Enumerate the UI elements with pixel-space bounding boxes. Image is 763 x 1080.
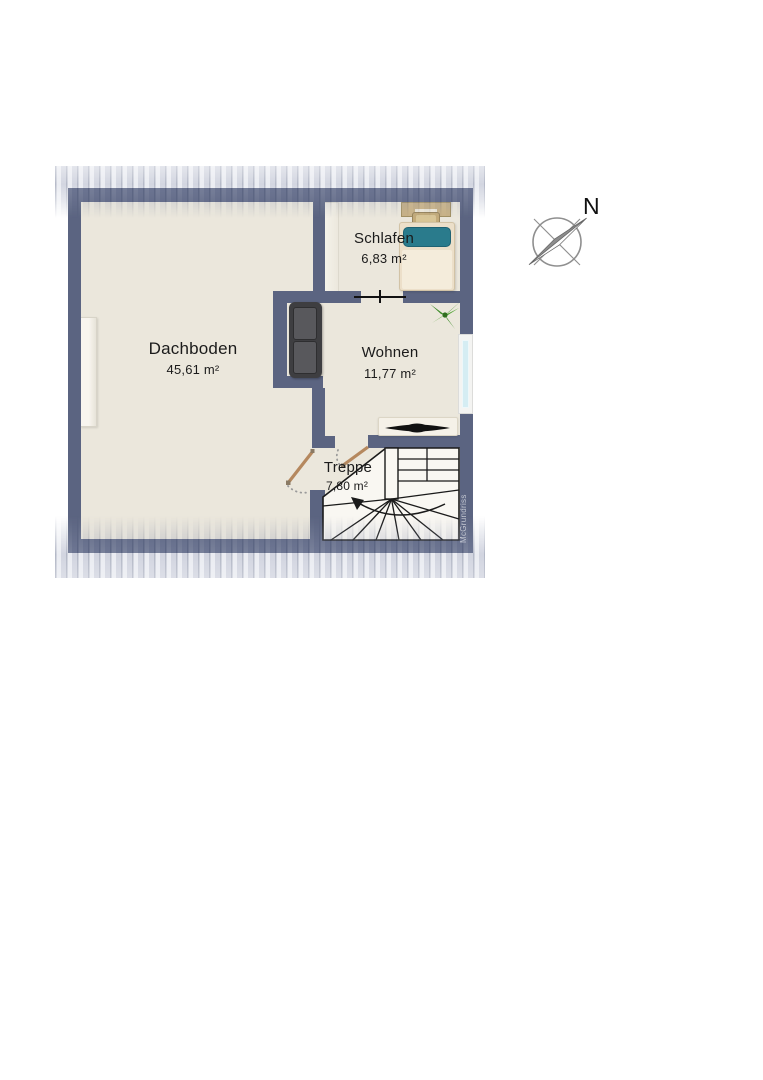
compass-rose: N [515,180,625,285]
room-label-dachboden: Dachboden [149,340,238,359]
sofa-cushion [293,341,317,374]
wardrobe-dachboden [80,317,97,427]
floor-plan-page: Dachboden 45,61 m² Schlafen 6,83 m² Wohn… [0,0,763,1080]
door-leaf-dachboden [288,451,313,483]
roof-slope-shading-bottom [55,516,485,578]
sofa-cushion [293,307,317,340]
room-area-treppe: 7,80 m² [326,480,368,493]
room-area-dachboden: 45,61 m² [167,363,220,377]
wall-outer-left [68,188,81,553]
door-swing-arc-dachboden [288,486,310,493]
room-label-schlafen: Schlafen [354,231,414,248]
window-right [458,334,473,414]
compass-needle [527,215,589,267]
bed-sheet [402,250,452,289]
watermark: McGrundriss [459,487,471,543]
window-glass [462,340,469,408]
sofa [289,302,322,378]
room-label-wohnen: Wohnen [362,345,419,362]
roof-slope-shading-top [55,166,485,218]
room-label-treppe: Treppe [324,460,372,477]
plant-icon [426,296,464,334]
room-area-wohnen: 11,77 m² [364,367,416,381]
north-label: N [583,193,600,219]
room-area-schlafen: 6,83 m² [361,252,406,266]
door-threshold-tick [379,290,381,303]
wall-sofa-nook-left [273,291,287,388]
